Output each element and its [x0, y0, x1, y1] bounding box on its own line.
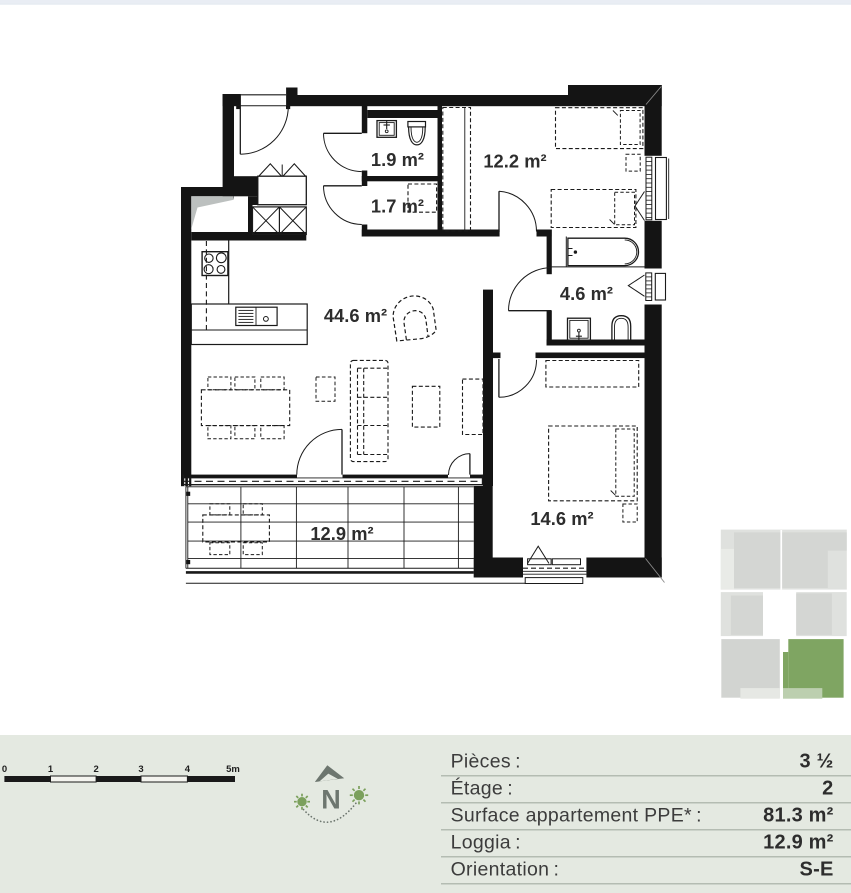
svg-text:2: 2 [93, 764, 98, 775]
svg-text:1.7 m²: 1.7 m² [371, 195, 424, 216]
svg-text:N: N [321, 785, 341, 815]
svg-text:5m: 5m [226, 764, 240, 775]
svg-text:Surface appartement PPE* :: Surface appartement PPE* : [451, 804, 702, 826]
svg-text:S-E: S-E [800, 858, 834, 880]
svg-text:Loggia :: Loggia : [451, 831, 521, 853]
svg-text:12.9 m²: 12.9 m² [310, 523, 373, 544]
svg-text:0: 0 [2, 764, 7, 775]
svg-text:3: 3 [138, 764, 143, 775]
svg-text:4.6 m²: 4.6 m² [560, 283, 613, 304]
svg-text:1.9 m²: 1.9 m² [371, 149, 424, 170]
svg-text:2: 2 [822, 777, 833, 799]
svg-text:4: 4 [185, 764, 191, 775]
svg-text:3 ½: 3 ½ [800, 750, 834, 772]
svg-text:Pièces :: Pièces : [451, 750, 521, 772]
svg-text:44.6 m²: 44.6 m² [324, 305, 387, 326]
svg-text:81.3 m²: 81.3 m² [763, 804, 833, 826]
svg-text:14.6 m²: 14.6 m² [530, 508, 593, 529]
svg-text:Étage :: Étage : [451, 776, 513, 799]
svg-text:12.2 m²: 12.2 m² [483, 151, 546, 172]
svg-text:Orientation :: Orientation : [451, 858, 560, 880]
svg-text:12.9 m²: 12.9 m² [763, 831, 833, 853]
svg-text:1: 1 [48, 764, 54, 775]
